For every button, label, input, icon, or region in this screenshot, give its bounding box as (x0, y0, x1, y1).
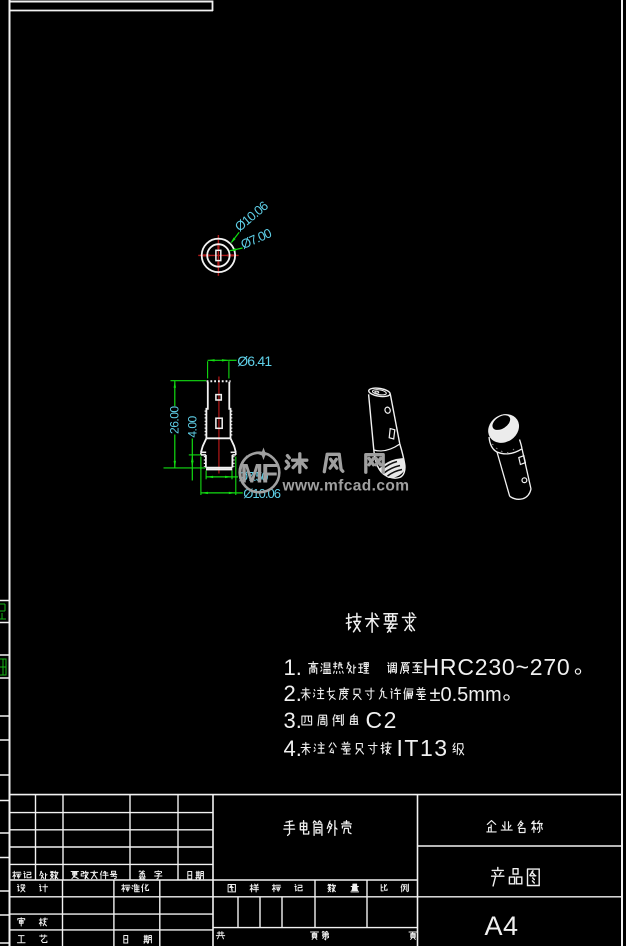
svg-text:3.: 3. (284, 708, 302, 733)
svg-text:A4: A4 (485, 911, 519, 941)
svg-text:4.: 4. (284, 736, 302, 761)
svg-text:1.: 1. (284, 655, 302, 680)
svg-text:HRC230~270: HRC230~270 (423, 654, 571, 680)
svg-text:±0.5mm: ±0.5mm (430, 684, 502, 706)
svg-text:2.: 2. (284, 681, 302, 706)
svg-text:Ø6.41: Ø6.41 (237, 353, 272, 369)
svg-text:MF: MF (241, 459, 278, 489)
svg-text:C2: C2 (366, 707, 398, 733)
svg-text:4.00: 4.00 (185, 415, 199, 437)
svg-text:IT13: IT13 (397, 735, 449, 761)
svg-text:26.00: 26.00 (168, 406, 182, 434)
svg-text:www.mfcad.com: www.mfcad.com (282, 478, 410, 495)
